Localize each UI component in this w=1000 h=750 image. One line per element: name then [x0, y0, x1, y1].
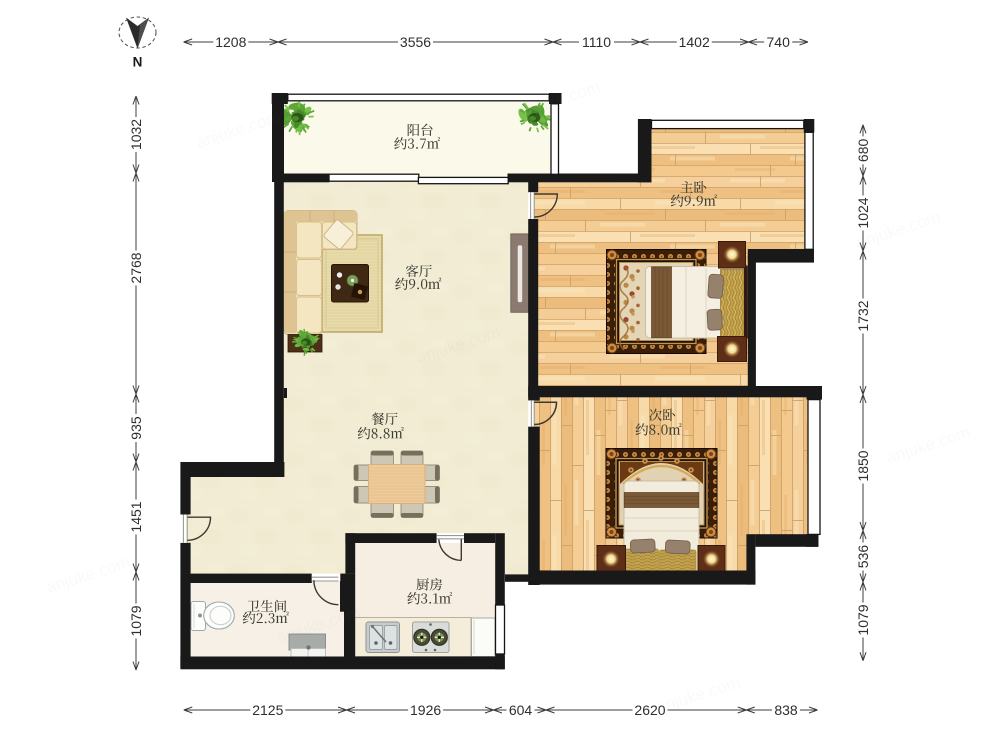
svg-text:1079: 1079 — [855, 604, 871, 635]
svg-text:2125: 2125 — [252, 702, 283, 718]
svg-text:838: 838 — [774, 702, 798, 718]
svg-text:604: 604 — [509, 702, 533, 718]
svg-text:3556: 3556 — [400, 34, 431, 50]
svg-text:1402: 1402 — [679, 34, 710, 50]
svg-text:1926: 1926 — [410, 702, 441, 718]
svg-text:1732: 1732 — [855, 300, 871, 331]
svg-text:1110: 1110 — [582, 34, 611, 50]
svg-text:1208: 1208 — [215, 34, 246, 50]
svg-text:1451: 1451 — [128, 501, 144, 532]
svg-text:2768: 2768 — [128, 252, 144, 283]
svg-text:935: 935 — [128, 416, 144, 440]
svg-text:680: 680 — [855, 139, 871, 163]
svg-text:1850: 1850 — [855, 450, 871, 481]
svg-text:1079: 1079 — [128, 605, 144, 636]
svg-text:740: 740 — [767, 34, 791, 50]
svg-text:536: 536 — [855, 545, 871, 569]
svg-text:1024: 1024 — [855, 197, 871, 228]
svg-text:N: N — [133, 55, 143, 70]
svg-text:1032: 1032 — [128, 119, 144, 150]
